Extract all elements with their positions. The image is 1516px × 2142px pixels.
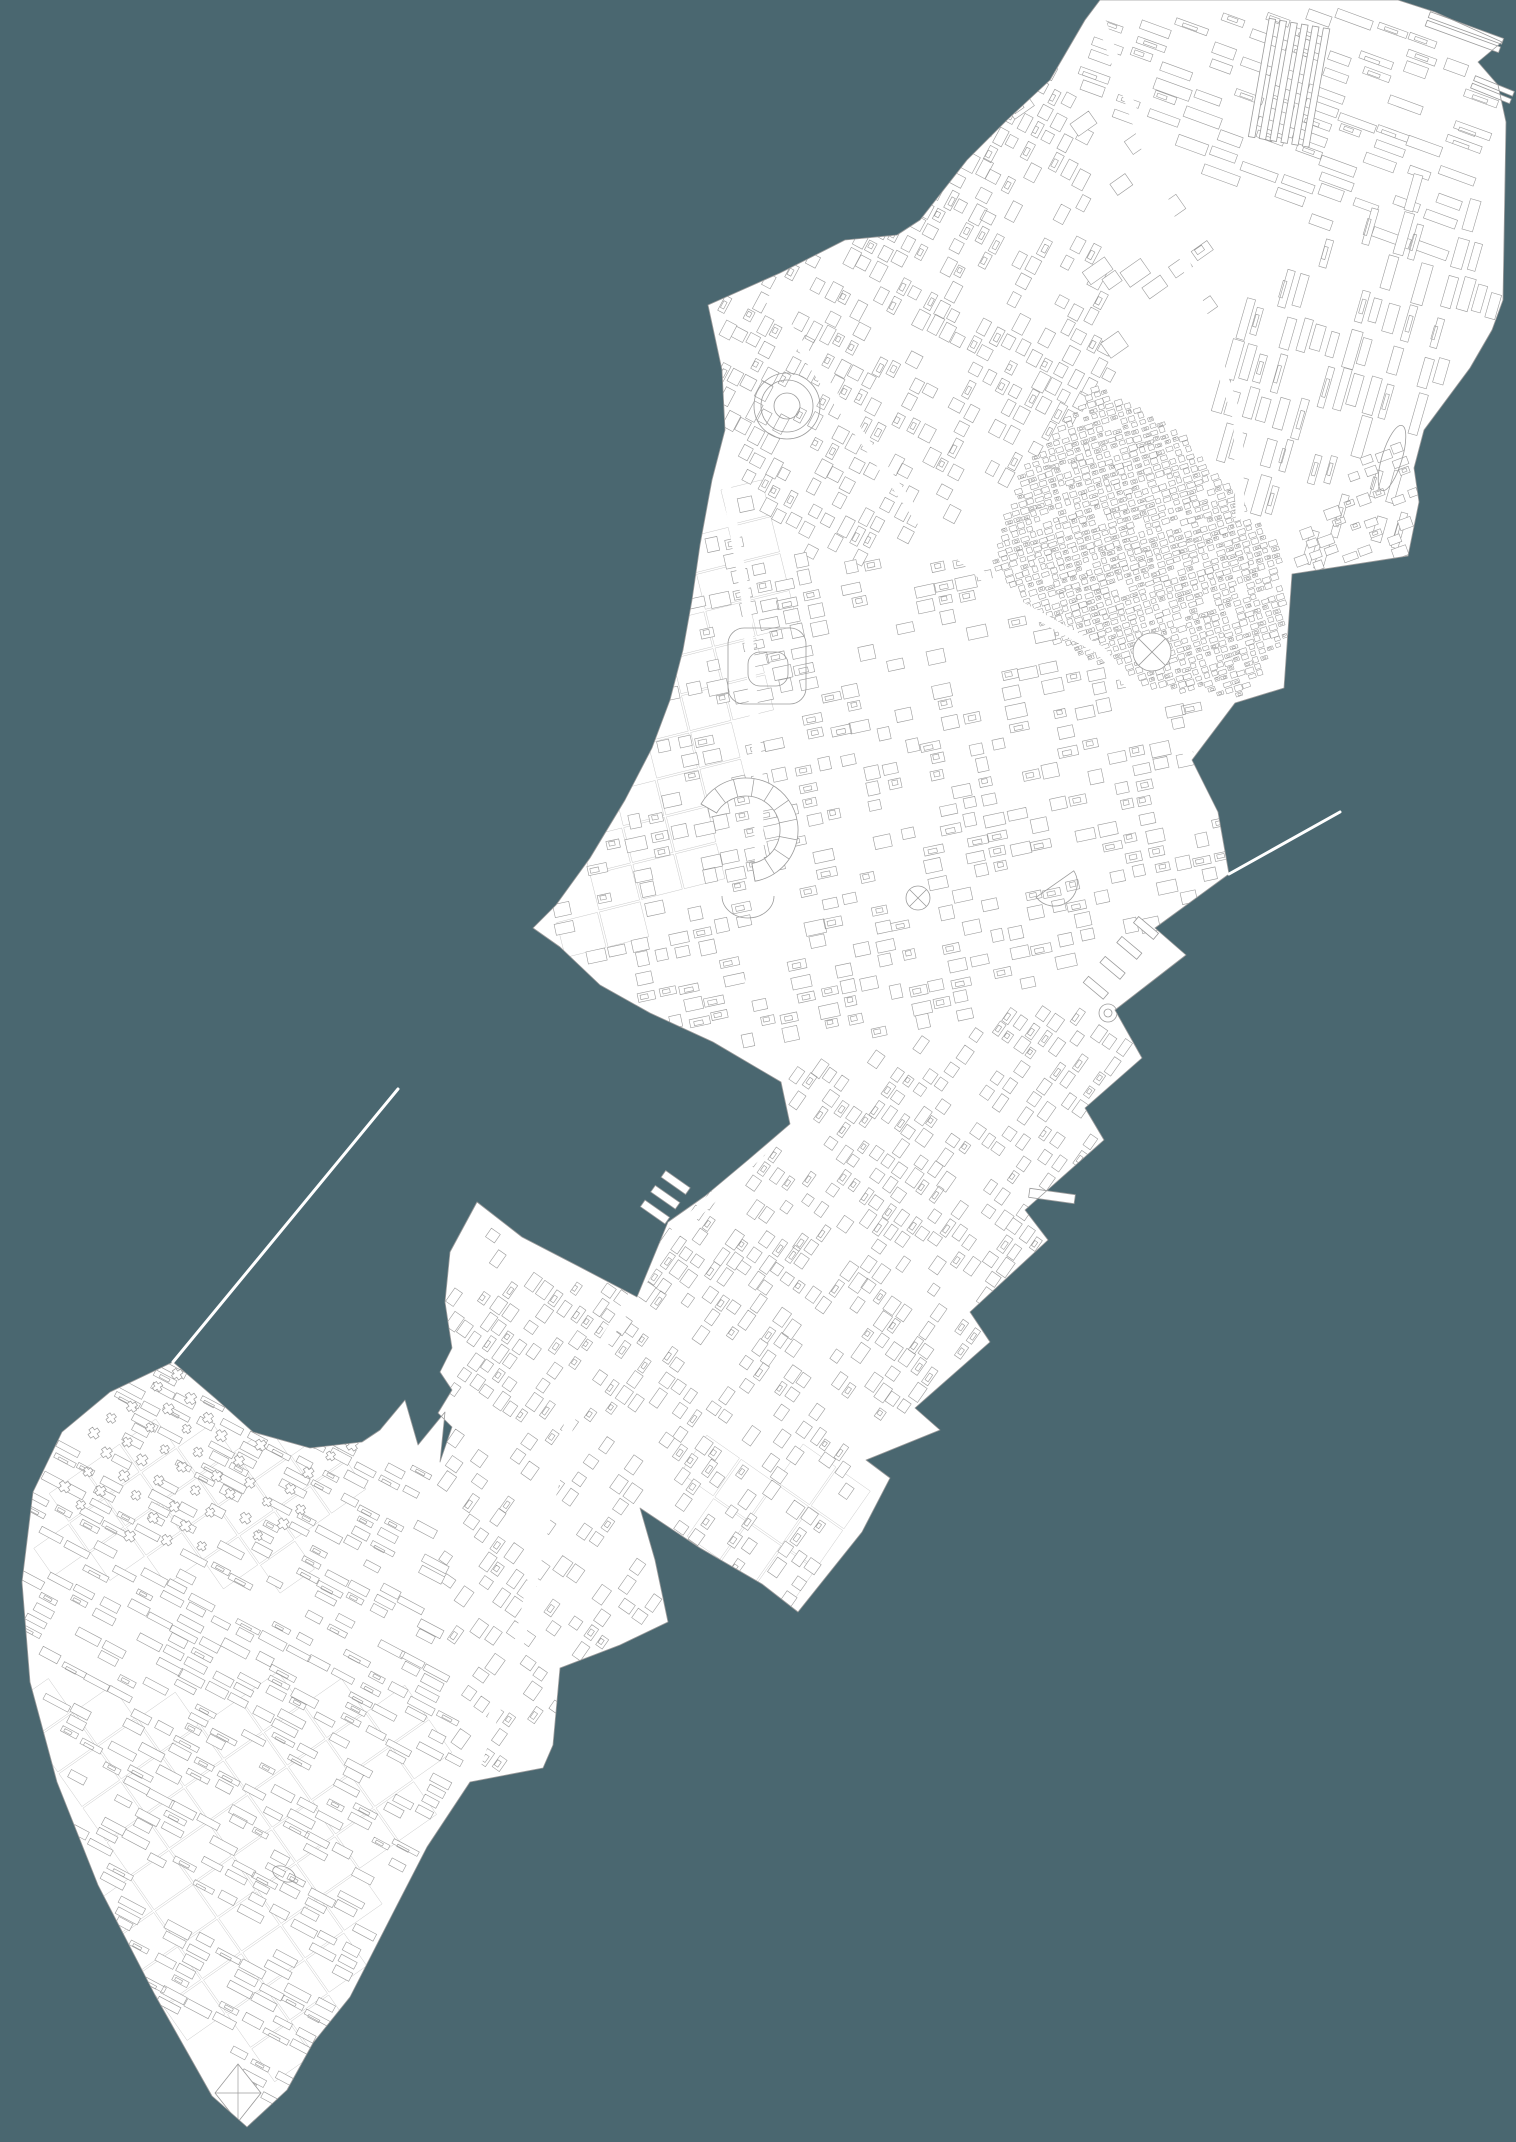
feature-four-lobe-roundabout [1133,633,1171,671]
screenshot-root: { "page": { "kind": "figure-ground vecto… [0,0,1516,2142]
feature-fountain-circle [906,886,930,910]
city-figure-ground-map [0,0,1516,2142]
map-stage [0,0,1516,2142]
